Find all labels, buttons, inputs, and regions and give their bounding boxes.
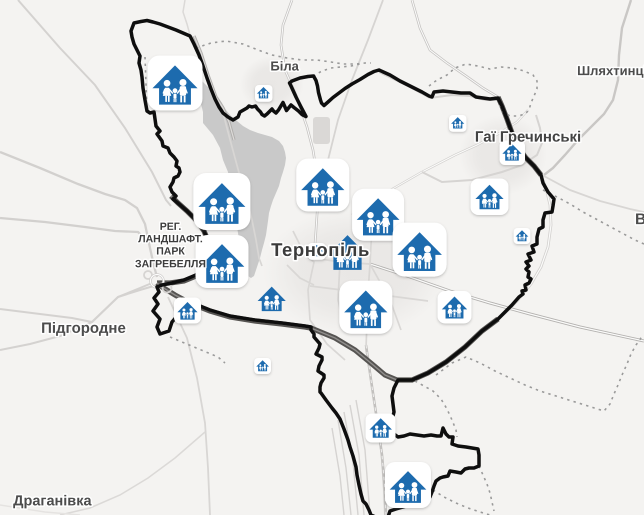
svg-text:ПАРК: ПАРК [156,246,185,258]
svg-text:Ве: Ве [635,211,644,228]
svg-text:ЛАНДШАФТ.: ЛАНДШАФТ. [138,233,203,245]
svg-text:Шляхтинці: Шляхтинці [577,63,644,78]
svg-text:Підгородне: Підгородне [41,320,126,337]
svg-text:Гаї Гречинські: Гаї Гречинські [475,129,581,146]
svg-text:ЗАГРЕБЕЛЛЯ: ЗАГРЕБЕЛЛЯ [135,258,206,270]
svg-text:Драганівка: Драганівка [13,493,92,509]
svg-text:Тернопіль: Тернопіль [271,239,370,260]
svg-text:Біла: Біла [270,58,299,73]
svg-text:РЕГ.: РЕГ. [160,221,182,233]
